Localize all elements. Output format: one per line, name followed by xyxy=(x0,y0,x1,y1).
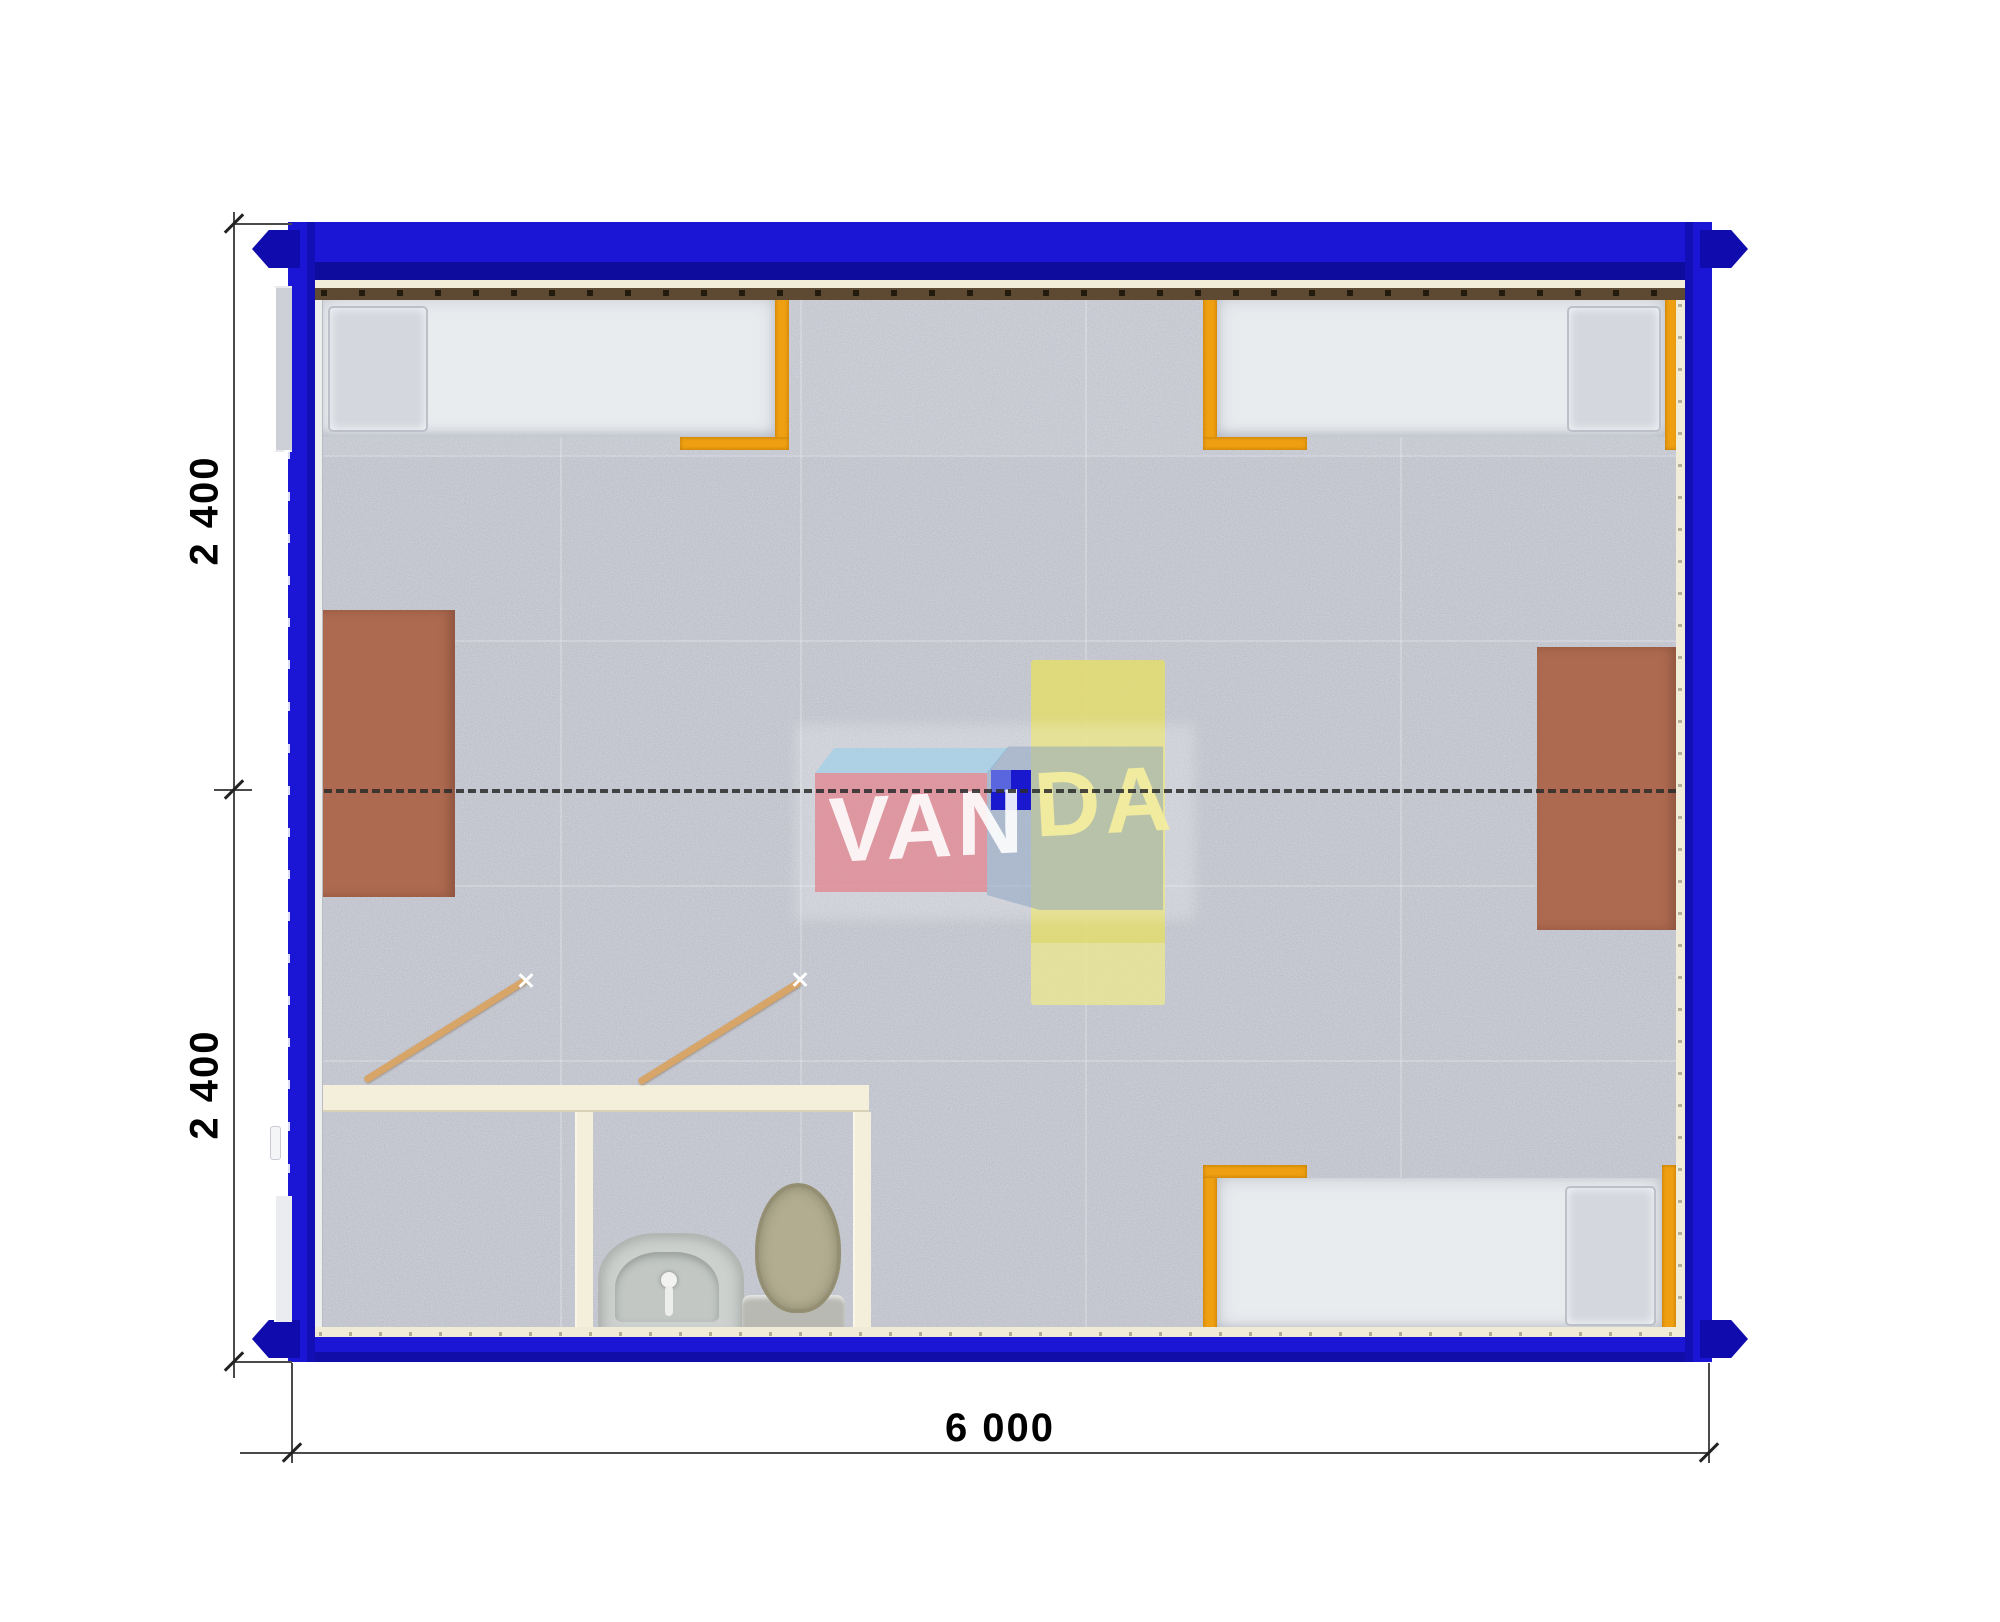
dimension-extension-top xyxy=(233,223,292,225)
wall-bottom xyxy=(288,1337,1712,1362)
door-swing-right-end-marker xyxy=(791,970,809,988)
floor-plan-canvas: VAN DA 2 400 2 400 6 000 xyxy=(0,0,2000,1622)
bathroom-wall-right xyxy=(853,1112,871,1332)
bed-top-left-pillow xyxy=(328,306,428,432)
left-wall-siding-pattern xyxy=(284,450,290,1195)
bed-bottom-right-frame-end xyxy=(1662,1165,1676,1332)
dimension-line-bottom xyxy=(240,1452,1710,1454)
bed-bottom-right-pillow xyxy=(1565,1186,1656,1326)
floor-seam xyxy=(315,1060,1685,1062)
wall-liner-right xyxy=(1676,300,1685,1327)
bathroom-wall-top xyxy=(315,1085,869,1112)
module-junction-dashed-line xyxy=(300,789,1712,793)
toilet-seat xyxy=(755,1183,841,1313)
door-left-wall xyxy=(274,1196,292,1322)
watermark-text-da: DA xyxy=(1032,752,1178,851)
dimension-label-width: 6 000 xyxy=(900,1406,1100,1451)
bed-top-left-frame-end xyxy=(775,296,789,450)
desk-left xyxy=(315,610,455,897)
wall-liner-left xyxy=(315,300,323,1327)
corner-casting-bottom-left xyxy=(252,1320,300,1358)
watermark-cube-top-face xyxy=(815,748,1008,773)
wall-liner-top xyxy=(315,280,1685,288)
dimension-line-left xyxy=(233,212,235,1378)
door-swing-left-end-marker xyxy=(517,971,535,989)
bed-bottom-right-frame-end xyxy=(1203,1165,1217,1332)
dimension-extension-bottom xyxy=(233,1361,292,1363)
window-rail-top xyxy=(315,288,1685,300)
floor-seam xyxy=(315,455,1685,457)
bed-top-right-frame-end xyxy=(1203,296,1217,450)
corner-casting-top-left xyxy=(252,230,300,268)
wall-liner-bottom xyxy=(315,1327,1685,1337)
corner-casting-bottom-right xyxy=(1700,1320,1748,1358)
bathroom-wall-divider xyxy=(575,1112,593,1332)
wall-right xyxy=(1685,222,1712,1362)
bed-top-right-frame-side xyxy=(1203,437,1307,450)
dimension-label-height-lower: 2 400 xyxy=(183,1000,228,1170)
wall-top xyxy=(288,222,1712,280)
bed-top-right-pillow xyxy=(1567,306,1661,432)
wall-left xyxy=(288,222,315,1362)
corner-casting-top-right xyxy=(1700,230,1748,268)
window-left-wall xyxy=(274,286,292,452)
floor-seam xyxy=(315,640,1685,642)
faucet-stem xyxy=(665,1286,673,1316)
bed-top-left-frame-side xyxy=(680,437,789,450)
dimension-label-height-upper: 2 400 xyxy=(183,426,228,596)
door-handle xyxy=(270,1126,281,1160)
bed-bottom-right-frame-side xyxy=(1203,1165,1307,1178)
